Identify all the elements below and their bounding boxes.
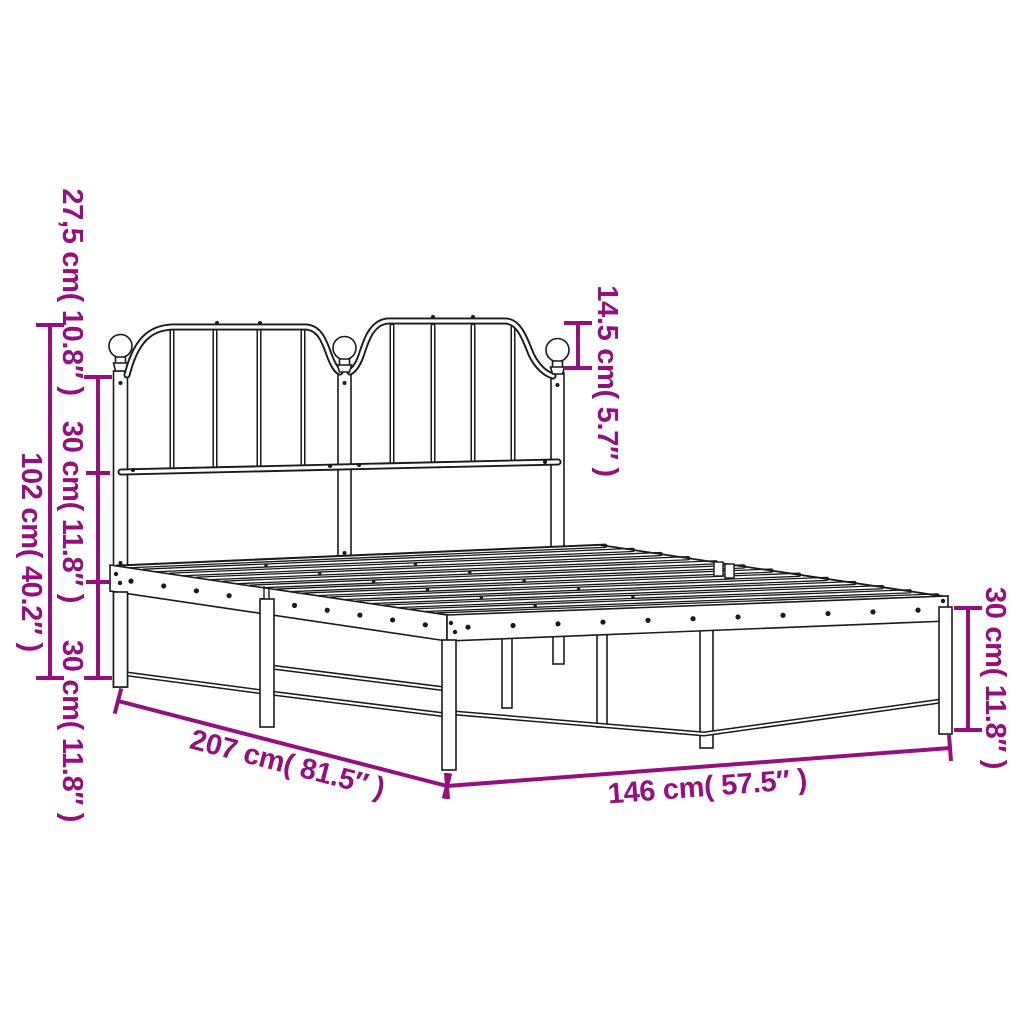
leg-foot-near [442, 640, 456, 770]
headboard-finials [109, 335, 569, 375]
label-headboard-mid-section: 30 cm( 11.8″ ) [56, 421, 88, 603]
bed-frame-dimension-diagram: 27,5 cm( 10.8″ ) 30 cm( 11.8″ ) 30 cm( 1… [0, 0, 1024, 1024]
label-headboard-top-section: 27,5 cm( 10.8″ ) [56, 188, 88, 395]
label-finial-height: 14.5 cm( 5.7″ ) [591, 285, 623, 477]
leg-foot-far [939, 607, 952, 734]
label-total-height: 102 cm( 40.2″ ) [15, 452, 47, 652]
finial-ball [546, 339, 569, 362]
finial-ball [109, 335, 132, 358]
dimension-labels: 27,5 cm( 10.8″ ) 30 cm( 11.8″ ) 30 cm( 1… [15, 188, 1011, 822]
label-frame-height-section: 30 cm( 11.8″ ) [56, 640, 88, 822]
leg-head-near [114, 592, 128, 687]
dimension-line-leg-height [954, 608, 982, 730]
leg-mid-near [260, 599, 274, 727]
label-leg-height: 30 cm( 11.8″ ) [979, 587, 1011, 769]
dimension-line-length [115, 688, 451, 798]
finial-ball [333, 337, 356, 360]
headboard-post-right [551, 373, 564, 559]
support-braces [127, 666, 941, 734]
